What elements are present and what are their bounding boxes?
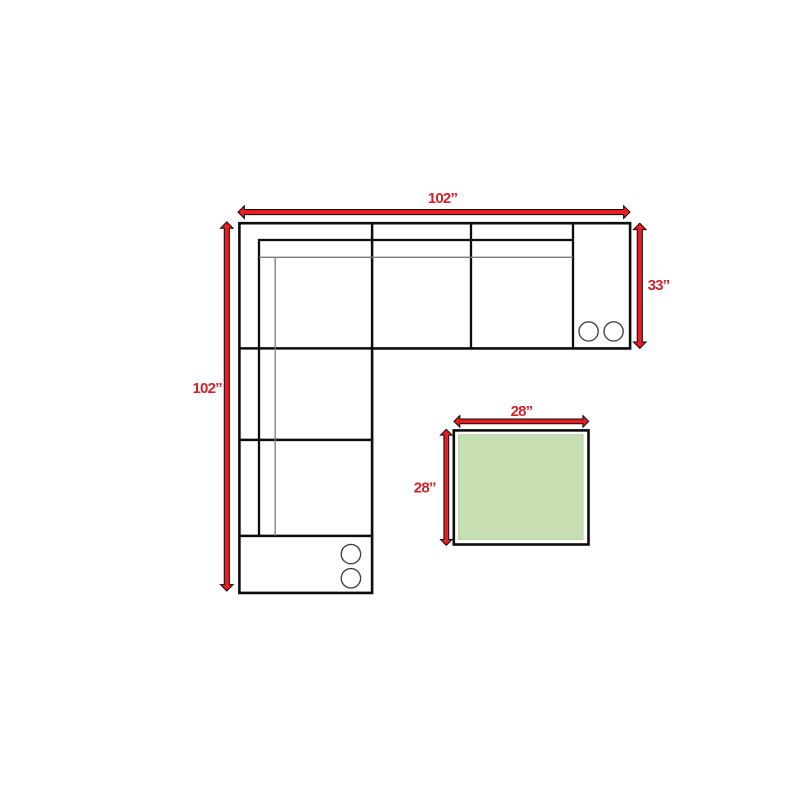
svg-text:102”: 102” xyxy=(193,380,223,397)
svg-text:102”: 102” xyxy=(428,190,458,207)
svg-text:28”: 28” xyxy=(511,403,533,420)
svg-text:28”: 28” xyxy=(414,479,436,496)
svg-text:33”: 33” xyxy=(648,277,670,294)
